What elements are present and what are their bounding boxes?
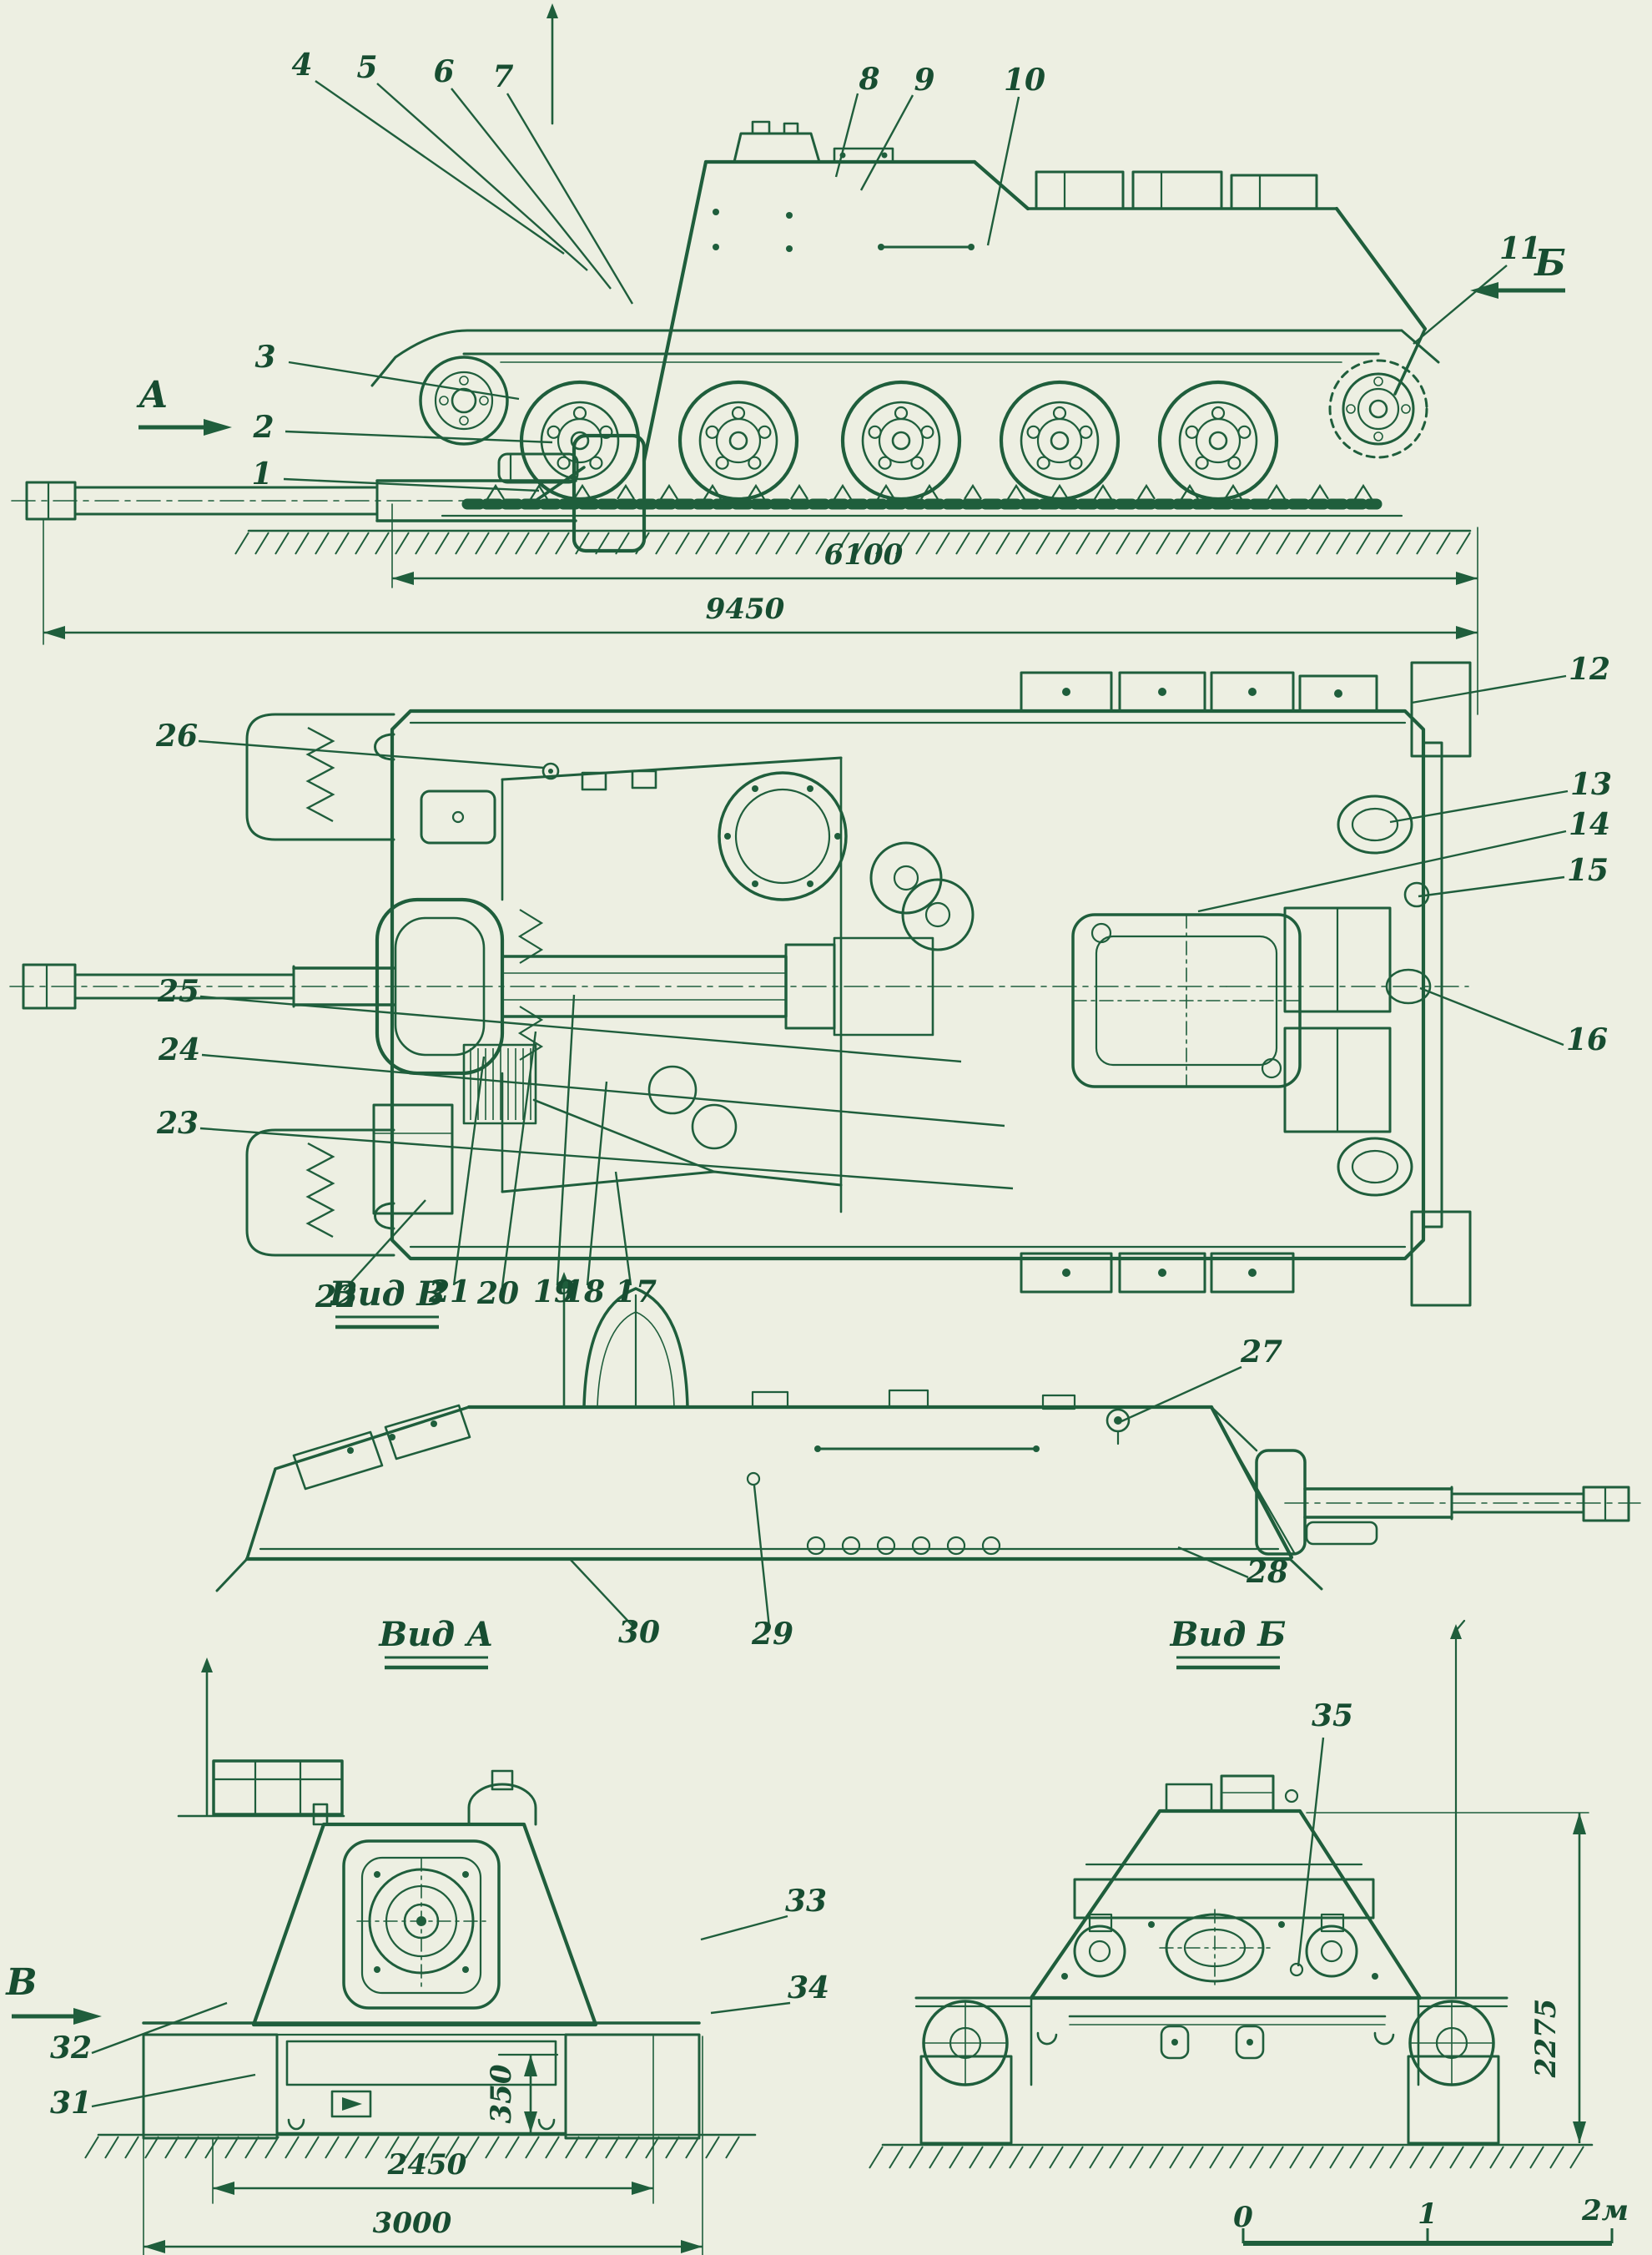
rear-view-drawing xyxy=(883,1621,1592,2145)
periscope xyxy=(784,124,798,134)
equipment-box xyxy=(374,1105,452,1213)
ground-hatch xyxy=(869,2147,1584,2168)
idler-wheel xyxy=(421,357,507,444)
section-letter: А xyxy=(136,374,169,416)
rear-slope xyxy=(1337,209,1425,329)
callout-leader-21 xyxy=(454,1057,484,1285)
dim-arrowhead-icon xyxy=(1456,572,1478,585)
callout-label-26: 26 xyxy=(155,719,198,754)
view-label: Вид В xyxy=(329,1274,445,1327)
blueprint-page: 61009450245030003502275 1234567891011121… xyxy=(0,0,1652,2255)
callout-label-7: 7 xyxy=(492,59,513,94)
dim-arrowhead-icon xyxy=(392,572,414,585)
callout-leader-23 xyxy=(200,1128,1013,1188)
view-label-text: Вид Б xyxy=(1170,1615,1287,1654)
callout-label-12: 12 xyxy=(1569,652,1610,687)
callout-leader-26 xyxy=(199,741,544,768)
callout-leader-33 xyxy=(701,1916,788,1940)
dim-arrowhead-icon xyxy=(681,2240,703,2253)
dimension-label-2450: 2450 xyxy=(387,2148,467,2182)
dimension-label-2275: 2275 xyxy=(1529,1999,1563,2079)
callout-label-3: 3 xyxy=(254,340,275,375)
view-direction-arrow-icon xyxy=(204,419,232,436)
callout-leader-28 xyxy=(1178,1547,1248,1577)
driver-hatch xyxy=(421,791,495,843)
dimension-350: 350 xyxy=(485,2055,537,2133)
view-labels: Вид ВВид АВид Б xyxy=(329,1274,1287,1667)
roof-box xyxy=(1221,1776,1273,1811)
dimension-label-9450: 9450 xyxy=(706,593,785,626)
callout-leader-11 xyxy=(1413,265,1507,344)
louvre-grille xyxy=(1075,1879,1373,1918)
callout-leader-32 xyxy=(92,2003,227,2053)
callout-label-8: 8 xyxy=(858,62,879,97)
callout-label-34: 34 xyxy=(788,1970,829,2005)
callout-leader-19 xyxy=(557,995,574,1285)
dim-arrowhead-icon xyxy=(1573,1813,1586,1834)
rear-casemate xyxy=(1031,1811,1420,1998)
callout-label-2: 2 xyxy=(252,410,274,445)
callout-label-6: 6 xyxy=(433,54,454,89)
plan-view-drawing xyxy=(10,663,1470,1305)
mudflaps xyxy=(217,1559,1322,1591)
dim-arrowhead-icon xyxy=(524,2055,537,2076)
callout-leader-20 xyxy=(502,1032,536,1287)
dimension-label-3000: 3000 xyxy=(373,2207,452,2240)
commander-cupola-plan xyxy=(719,773,846,900)
callout-leader-9 xyxy=(861,95,913,190)
stowage-box xyxy=(214,1761,342,1814)
dim-arrowhead-icon xyxy=(1573,2121,1586,2143)
callout-label-25: 25 xyxy=(157,974,199,1009)
callout-leader-8 xyxy=(836,93,858,177)
cupola xyxy=(734,134,819,162)
callout-label-20: 20 xyxy=(476,1276,519,1311)
callout-leader-29 xyxy=(754,1486,769,1627)
callout-label-10: 10 xyxy=(1004,63,1045,98)
rear-idler xyxy=(924,2001,1007,2085)
dimension-6100: 6100 xyxy=(392,538,1478,585)
rear-idler xyxy=(1410,2001,1493,2085)
tank-blueprint-drawing: 61009450245030003502275 1234567891011121… xyxy=(0,0,1652,2255)
dim-arrowhead-icon xyxy=(213,2182,234,2195)
callout-label-19: 19 xyxy=(533,1274,575,1309)
roof-box xyxy=(1166,1784,1211,1811)
scale-bar: 012м xyxy=(1233,2194,1629,2243)
callout-leader-12 xyxy=(1412,676,1566,703)
antenna-tip-icon xyxy=(546,3,558,18)
seat xyxy=(693,1105,736,1148)
front-fender xyxy=(247,1130,394,1255)
callout-label-17: 17 xyxy=(615,1274,657,1309)
seat xyxy=(649,1067,696,1113)
stowage-box xyxy=(1231,175,1317,209)
view-label: Вид А xyxy=(378,1615,493,1667)
periscope-plan xyxy=(632,771,656,788)
front-fender xyxy=(247,714,394,840)
view-label-text: Вид А xyxy=(378,1615,493,1654)
callout-leader-6 xyxy=(451,88,611,289)
callout-leader-15 xyxy=(1418,877,1564,896)
callout-leader-10 xyxy=(988,97,1019,245)
antenna-tip-icon xyxy=(201,1657,213,1672)
dimension-label-6100: 6100 xyxy=(824,538,904,572)
section-letter: В xyxy=(4,1961,37,2004)
oval-hatch xyxy=(1338,1138,1412,1195)
callout-leader-2 xyxy=(285,431,552,442)
callout-label-13: 13 xyxy=(1570,767,1612,802)
antenna xyxy=(1456,1621,1464,1996)
stowage-box xyxy=(1133,172,1221,209)
hull-outline xyxy=(392,711,1423,1259)
oval-hatch xyxy=(1338,796,1412,853)
callout-leader-27 xyxy=(1120,1367,1242,1422)
callout-label-15: 15 xyxy=(1567,853,1609,888)
callout-label-29: 29 xyxy=(751,1617,793,1652)
callout-label-14: 14 xyxy=(1569,807,1610,842)
view-label-text: Вид В xyxy=(329,1274,445,1314)
callout-label-35: 35 xyxy=(1312,1698,1353,1733)
opposite-side-view-drawing xyxy=(217,1272,1640,1591)
right-track xyxy=(566,2035,699,2138)
roof-fitting xyxy=(889,1390,928,1407)
tow-hooks xyxy=(1038,2033,1393,2044)
dim-arrowhead-icon xyxy=(632,2182,653,2195)
callout-label-32: 32 xyxy=(50,2031,92,2066)
access-cover xyxy=(1075,1926,1125,1976)
callout-label-33: 33 xyxy=(785,1884,827,1919)
roof-fitting xyxy=(753,1392,788,1407)
left-track xyxy=(144,2035,277,2138)
section-marker-А: А xyxy=(136,374,232,436)
casemate-sides xyxy=(502,758,841,1192)
front-slope xyxy=(644,162,706,461)
callout-label-24: 24 xyxy=(158,1032,200,1067)
dimension-9450: 9450 xyxy=(43,593,1478,639)
drive-sprocket xyxy=(1330,361,1427,457)
section-letter: Б xyxy=(1533,242,1566,285)
callout-label-28: 28 xyxy=(1246,1555,1288,1590)
recuperator xyxy=(1307,1522,1377,1544)
scale-label-1: 1 xyxy=(1418,2197,1438,2231)
callout-label-31: 31 xyxy=(50,2086,92,2121)
callout-label-5: 5 xyxy=(356,50,377,85)
callout-label-9: 9 xyxy=(914,63,934,98)
access-cover xyxy=(1307,1926,1357,1976)
callout-label-27: 27 xyxy=(1240,1334,1282,1370)
scale-label-0: 0 xyxy=(1233,2201,1253,2234)
callout-leader-34 xyxy=(711,2003,790,2013)
view-direction-arrow-icon xyxy=(73,2008,102,2025)
spare-track-zigzag xyxy=(308,728,333,1237)
recoil-springs xyxy=(520,910,541,1060)
fender xyxy=(372,330,1438,386)
dimension-label-350: 350 xyxy=(485,2064,518,2123)
dim-arrowhead-icon xyxy=(1456,626,1478,639)
callout-label-23: 23 xyxy=(156,1106,199,1141)
callout-annotations: 1234567891011121314151617181920212223242… xyxy=(50,48,1612,2121)
scale-label-2м: 2м xyxy=(1581,2194,1629,2227)
periscope xyxy=(492,1771,512,1789)
section-marker-В: В xyxy=(4,1961,102,2025)
dim-arrowhead-icon xyxy=(43,626,65,639)
callout-leader-4 xyxy=(315,81,564,254)
callout-label-16: 16 xyxy=(1566,1022,1608,1057)
view-label: Вид Б xyxy=(1170,1615,1287,1667)
callout-leader-14 xyxy=(1198,831,1566,911)
callout-leader-7 xyxy=(507,93,632,304)
dimension-2275: 2275 xyxy=(1529,1813,1586,2143)
dim-arrowhead-icon xyxy=(144,2240,165,2253)
dimension-3000: 3000 xyxy=(144,2207,703,2253)
callout-label-1: 1 xyxy=(251,457,272,492)
periscope xyxy=(753,122,769,134)
ground-hatching xyxy=(85,532,1584,2168)
callout-leader-35 xyxy=(1298,1738,1323,1966)
rear-slope xyxy=(247,1407,469,1559)
port-plug xyxy=(748,1473,759,1485)
callout-leader-25 xyxy=(200,996,961,1062)
dim-arrowhead-icon xyxy=(524,2111,537,2133)
callout-leader-17 xyxy=(616,1172,631,1285)
callout-leader-13 xyxy=(1390,791,1568,822)
deck-boxes xyxy=(294,1405,470,1489)
callout-label-4: 4 xyxy=(291,48,312,83)
callout-label-30: 30 xyxy=(618,1615,660,1650)
callout-leader-31 xyxy=(92,2075,255,2106)
stowage-box xyxy=(1036,172,1123,209)
